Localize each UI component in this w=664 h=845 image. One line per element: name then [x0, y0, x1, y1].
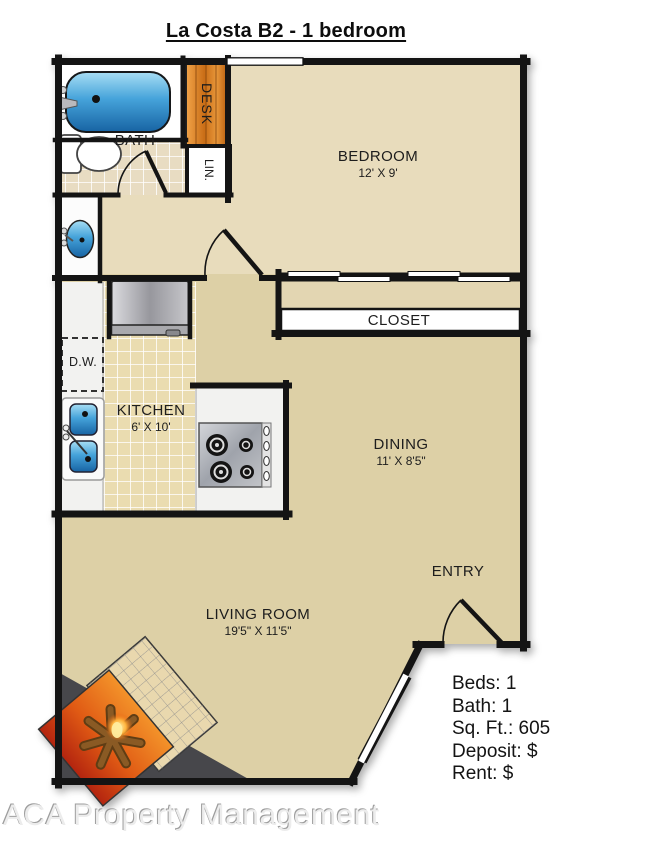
bath-line: Bath: 1	[452, 696, 550, 719]
bathtub-icon	[59, 72, 170, 132]
deposit-line: Deposit: $	[452, 741, 550, 764]
beds-line: Beds: 1	[452, 673, 550, 696]
linen-label: LIN.	[202, 159, 216, 181]
closet-floor	[281, 281, 521, 310]
kitchen-label: KITCHEN 6' X 10'	[91, 402, 211, 434]
dining-label: DINING 11' X 8'5"	[301, 436, 501, 468]
bedroom-label: BEDROOM 12' X 9'	[278, 148, 478, 180]
entry-label: ENTRY	[408, 563, 508, 581]
living-room-label: LIVING ROOM 19'5" X 11'5"	[158, 606, 358, 638]
sqft-line: Sq. Ft.: 605	[452, 718, 550, 741]
desk-label: DESK	[199, 83, 215, 125]
closet-sliding-doors	[276, 272, 524, 282]
company-watermark: ACA Property Management	[3, 799, 380, 833]
floor-plan-page: La Costa B2 - 1 bedroom	[0, 0, 664, 845]
unit-details: Beds: 1 Bath: 1 Sq. Ft.: 605 Deposit: $ …	[452, 673, 550, 786]
window-top	[227, 58, 303, 65]
bath-label: BATH	[95, 132, 175, 150]
dishwasher-label: D.W.	[58, 355, 108, 370]
rent-line: Rent: $	[452, 763, 550, 786]
closet-label: CLOSET	[299, 312, 499, 330]
refrigerator-icon	[112, 281, 189, 336]
